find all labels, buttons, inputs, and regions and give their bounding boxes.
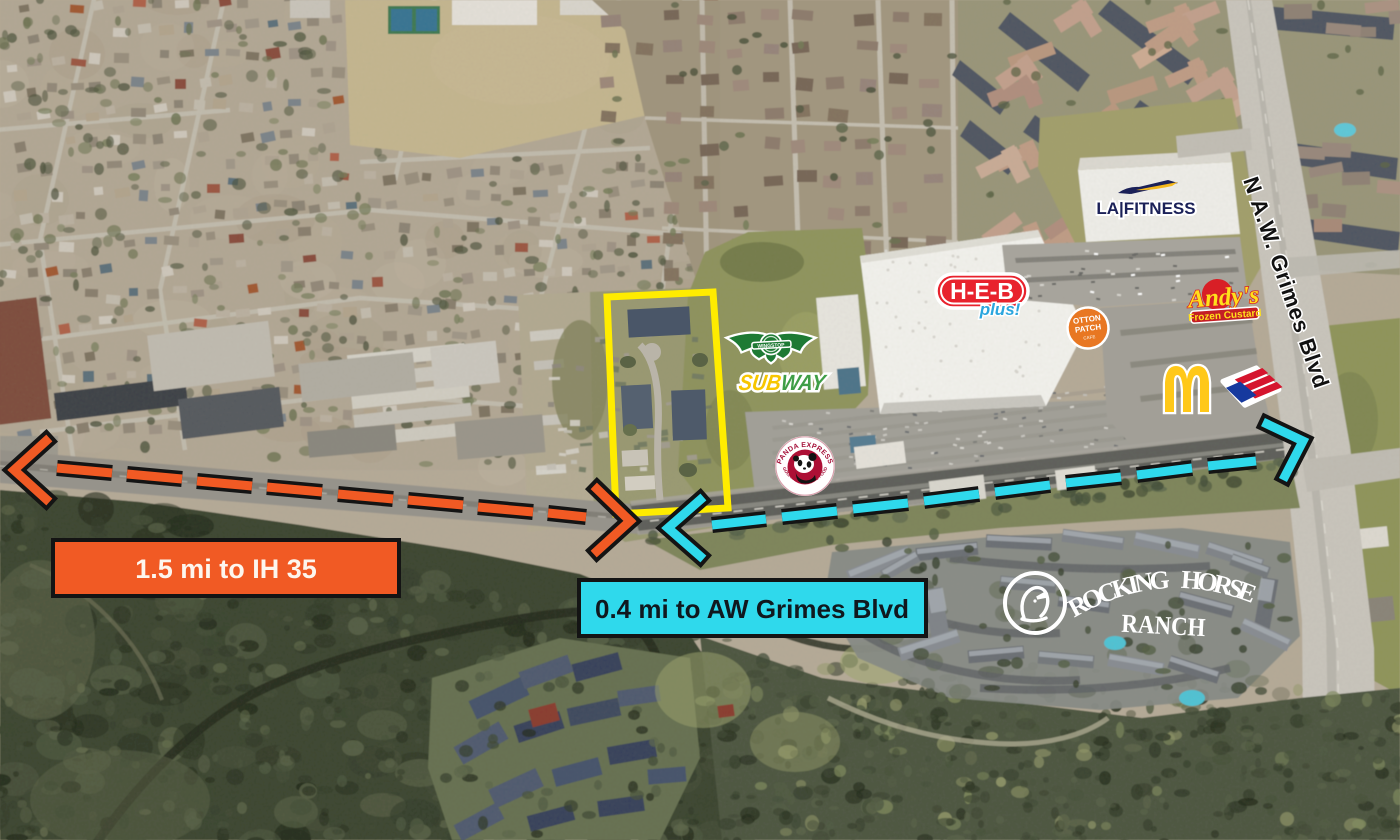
svg-text:SUBWAY: SUBWAY	[737, 370, 829, 395]
svg-text:0.4 mi to AW Grimes Blvd: 0.4 mi to AW Grimes Blvd	[595, 594, 909, 624]
svg-text:RANCH: RANCH	[1121, 609, 1206, 642]
svg-text:1.5 mi to IH 35: 1.5 mi to IH 35	[135, 554, 317, 584]
svg-text:LA|FITNESS: LA|FITNESS	[1096, 199, 1195, 218]
svg-text:plus!: plus!	[979, 300, 1021, 319]
